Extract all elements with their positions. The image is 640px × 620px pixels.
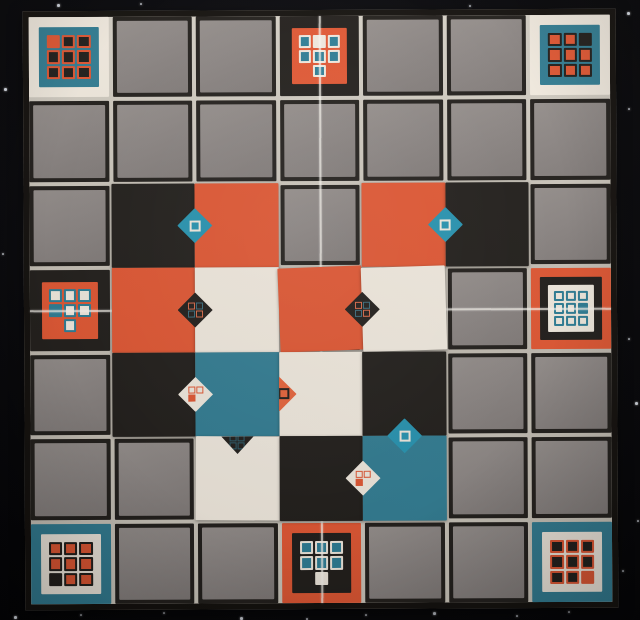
mini-grid-glyph-cell	[188, 311, 195, 318]
mini-grid-glyph-cell	[355, 302, 362, 309]
star	[628, 108, 630, 110]
star	[568, 611, 570, 613]
tromino-glyph-cell	[355, 471, 362, 478]
star	[627, 12, 630, 15]
star	[622, 570, 624, 572]
tromino-glyph-cell	[356, 479, 363, 486]
square-outline-glyph	[189, 220, 200, 231]
star	[469, 5, 471, 7]
tromino-glyph	[188, 387, 203, 402]
square-outline-glyph	[399, 430, 410, 441]
star	[140, 3, 142, 5]
mini-grid-glyph	[355, 302, 370, 317]
star	[365, 614, 367, 616]
board-overlay	[29, 15, 613, 605]
game-board	[23, 9, 619, 611]
square-outline-glyph	[440, 219, 451, 230]
square-outline-glyph	[279, 389, 290, 400]
star	[163, 612, 165, 614]
star	[433, 612, 436, 615]
star	[637, 520, 639, 522]
tromino-glyph-cell	[196, 387, 203, 394]
tromino-glyph	[355, 471, 370, 486]
star	[635, 402, 638, 405]
mini-grid-glyph-cell	[363, 310, 370, 317]
tromino-glyph-cell	[188, 387, 195, 394]
tromino-glyph-cell	[188, 395, 195, 402]
star	[306, 618, 308, 620]
star	[57, 4, 60, 7]
star	[240, 617, 243, 620]
star	[4, 88, 7, 91]
mini-grid-glyph-cell	[188, 303, 195, 310]
star	[14, 616, 17, 619]
starfield-background	[0, 0, 640, 620]
star	[80, 614, 82, 616]
mini-grid-glyph-cell	[196, 311, 203, 318]
mini-grid-glyph-cell	[196, 303, 203, 310]
mini-grid-glyph	[188, 303, 203, 318]
tromino-glyph-cell	[363, 471, 370, 478]
mini-grid-glyph-cell	[355, 310, 362, 317]
star	[628, 338, 630, 340]
star	[2, 253, 4, 255]
star	[516, 615, 518, 617]
mini-grid-glyph-cell	[363, 302, 370, 309]
